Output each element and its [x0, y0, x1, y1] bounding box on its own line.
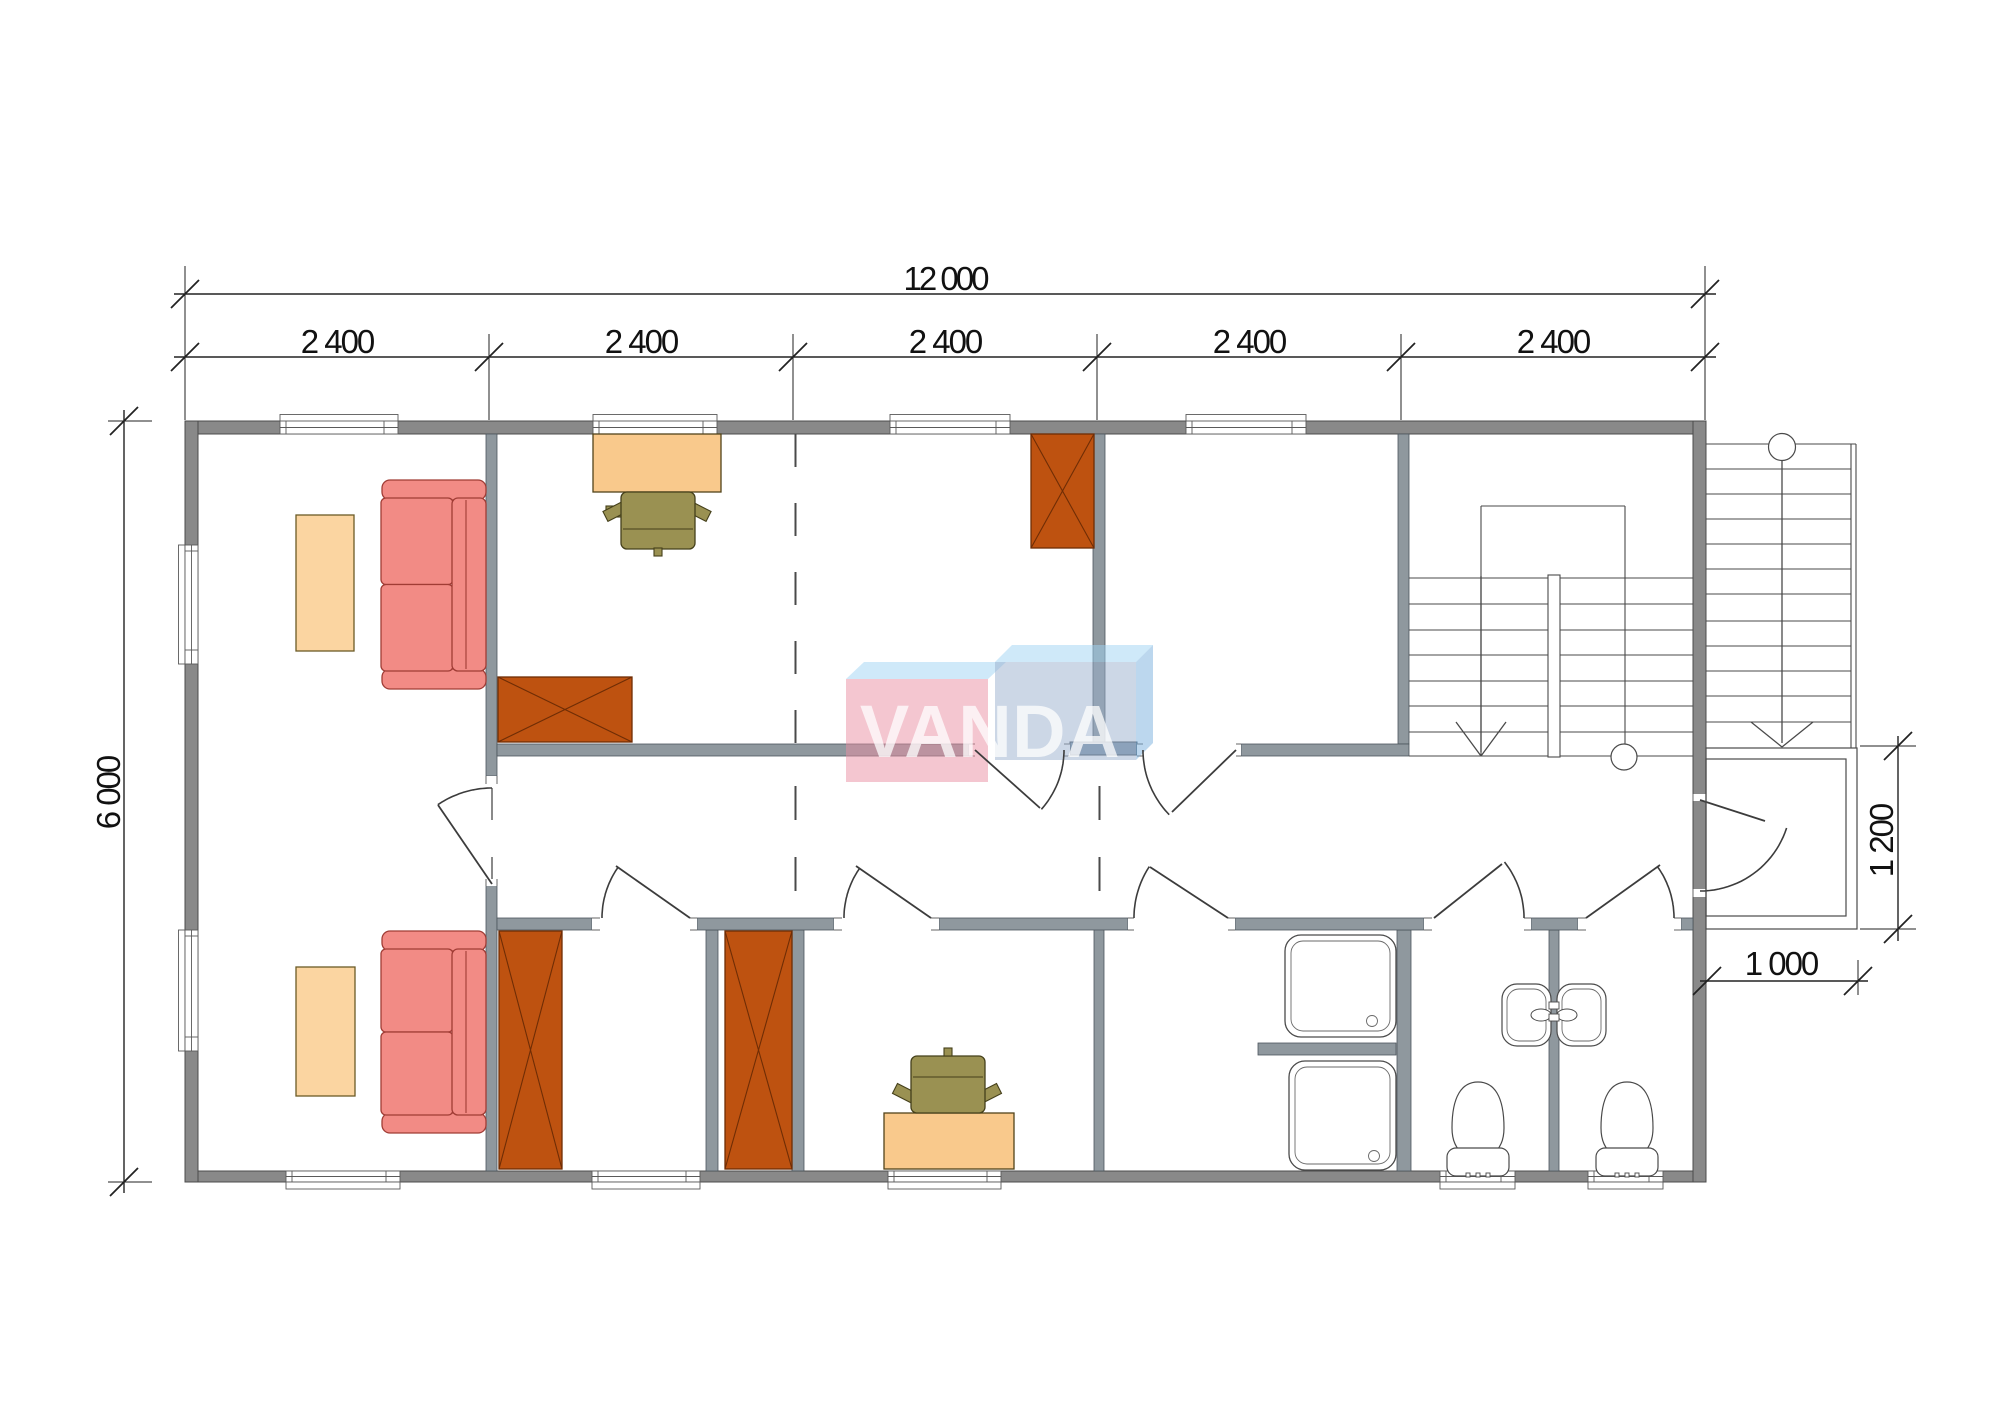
svg-text:2 400: 2 400	[301, 323, 375, 360]
svg-text:6 000: 6 000	[90, 755, 127, 829]
svg-text:2 400: 2 400	[1213, 323, 1287, 360]
svg-text:VANDA: VANDA	[860, 690, 1120, 773]
svg-text:2 400: 2 400	[605, 323, 679, 360]
svg-text:1 000: 1 000	[1745, 945, 1819, 982]
svg-text:12 000: 12 000	[904, 260, 990, 297]
svg-text:1 200: 1 200	[1863, 803, 1900, 877]
svg-text:2 400: 2 400	[909, 323, 983, 360]
svg-text:2 400: 2 400	[1517, 323, 1591, 360]
